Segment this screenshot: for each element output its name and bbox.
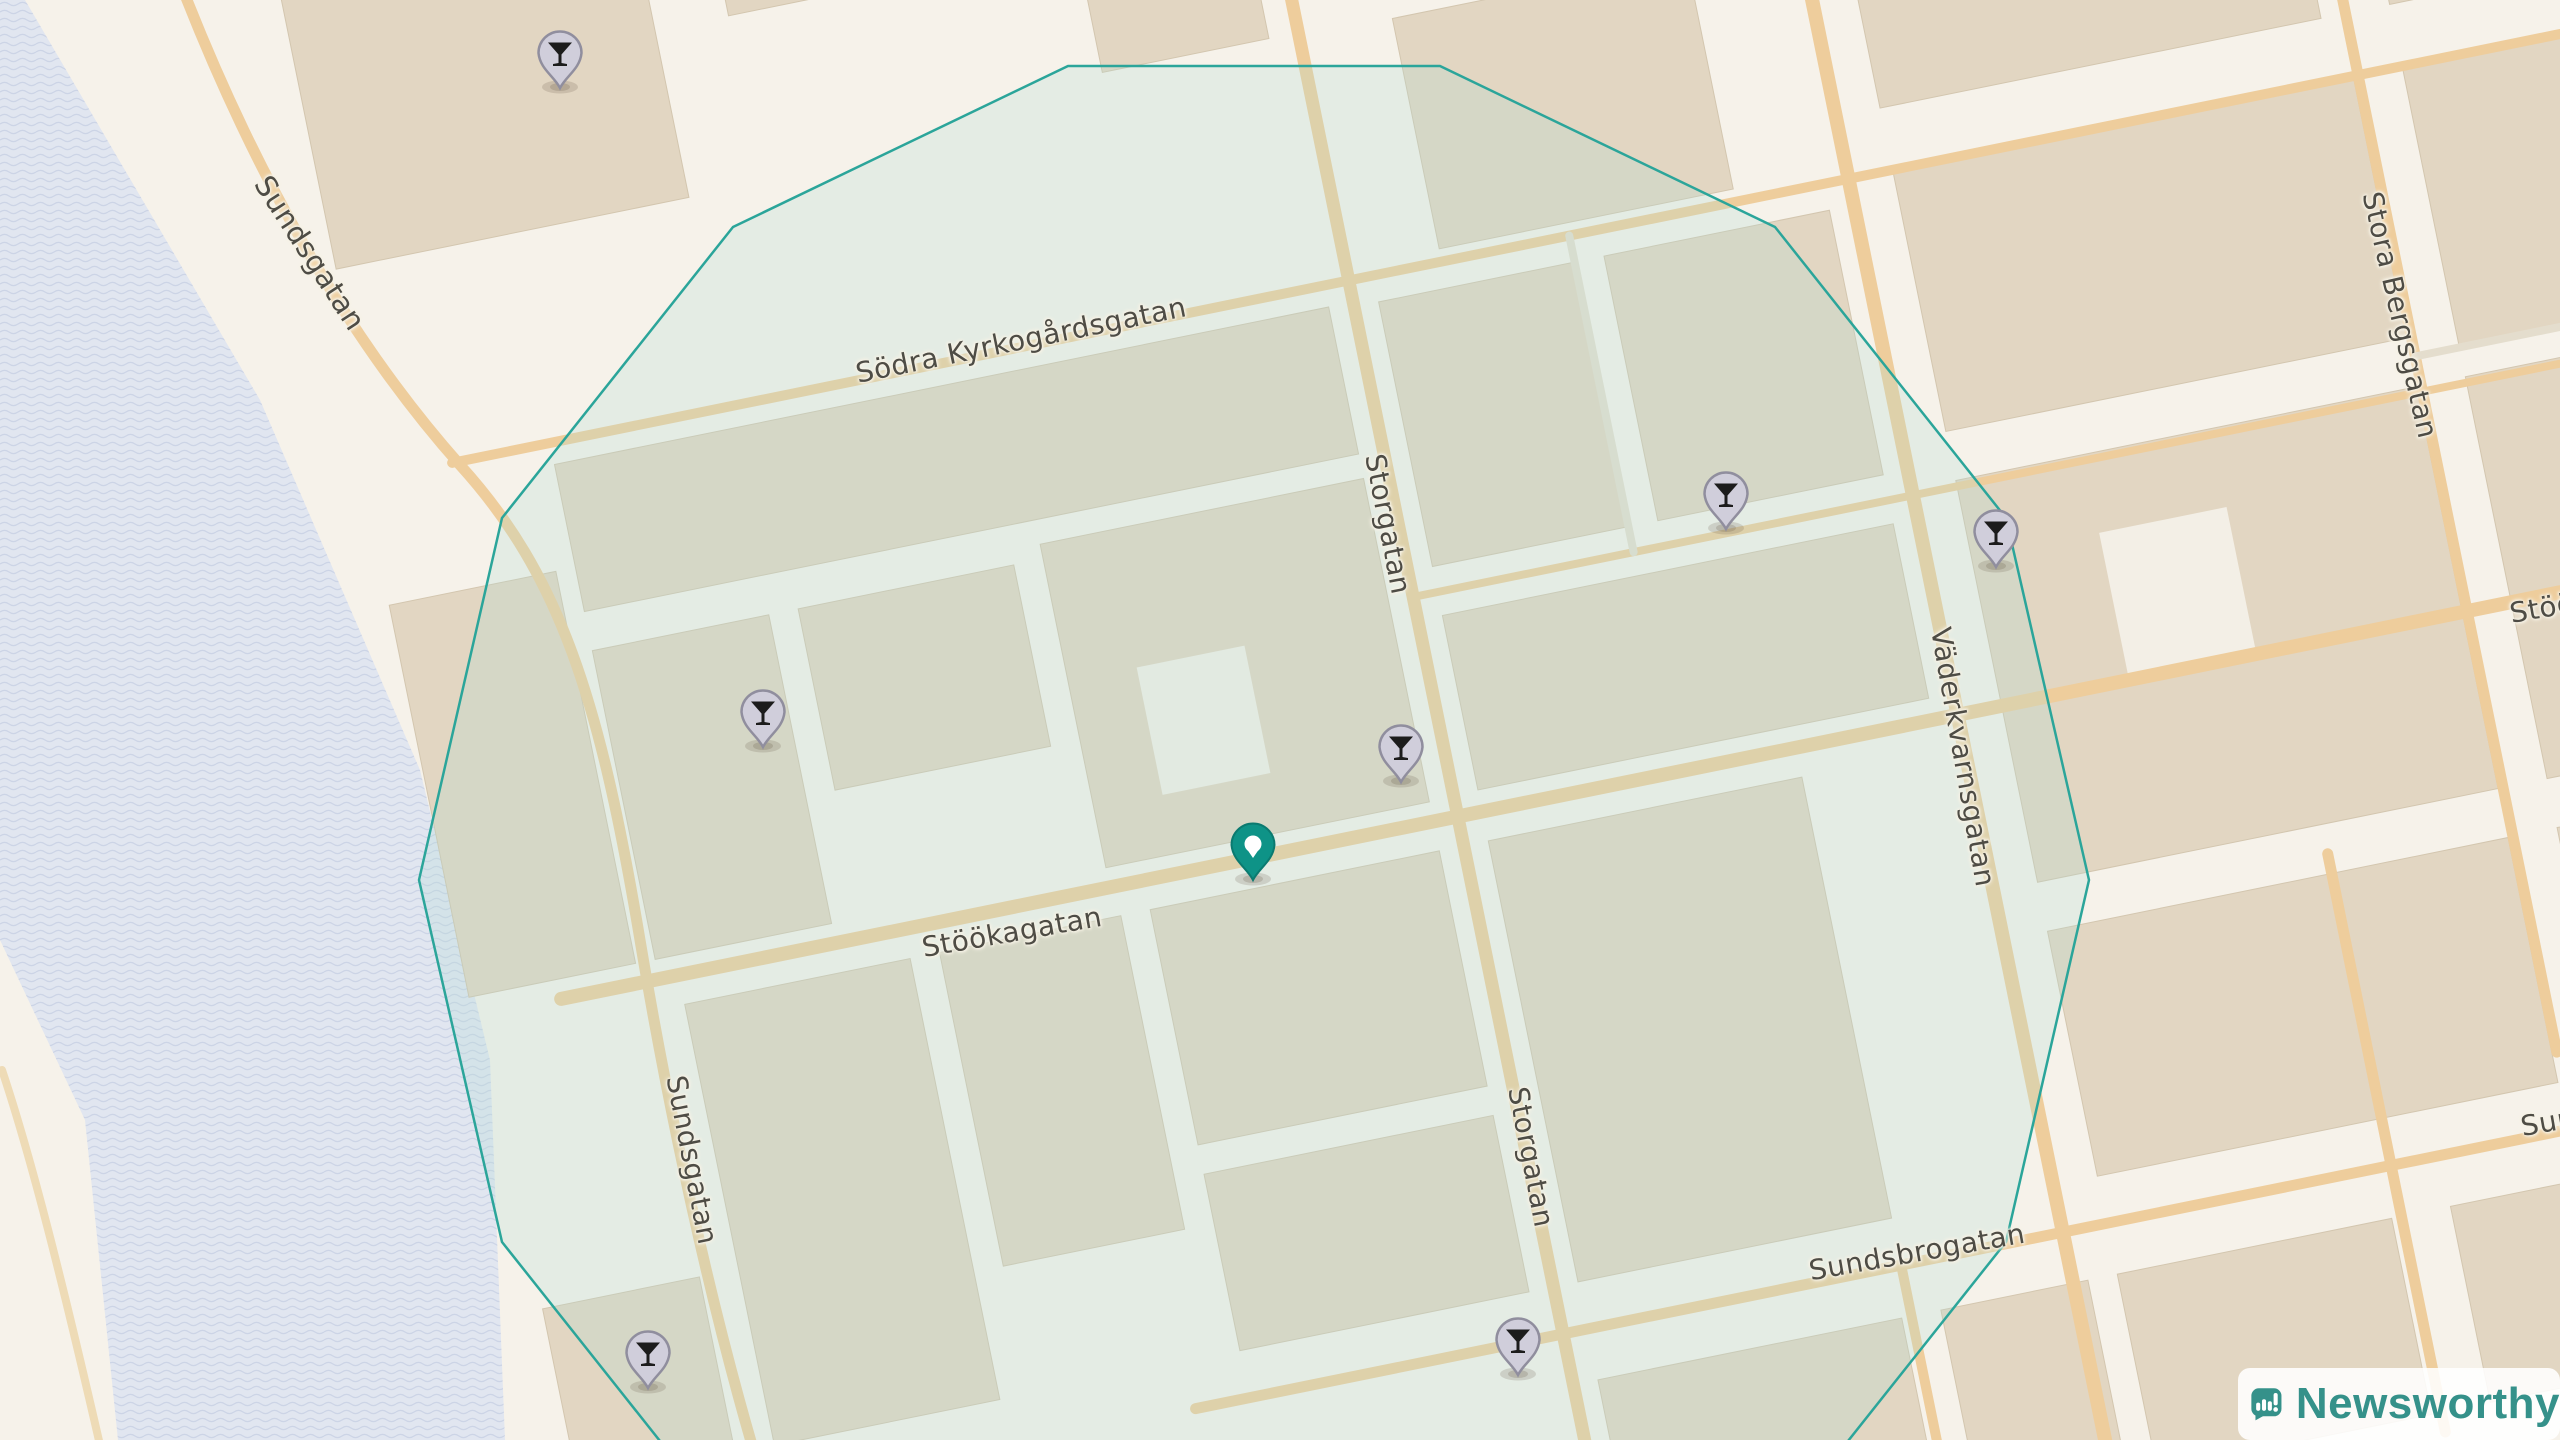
martini-glass-icon [534, 28, 586, 94]
martini-glass-icon [737, 687, 789, 753]
newsworthy-logo[interactable]: Newsworthy [2238, 1368, 2560, 1440]
selected-location-pin[interactable] [1227, 820, 1279, 886]
martini-glass-icon [622, 1328, 674, 1394]
map-graphic [0, 0, 2560, 1440]
bar-location-pin[interactable] [1970, 507, 2022, 573]
bar-location-pin[interactable] [1492, 1315, 1544, 1381]
bar-location-pin[interactable] [1700, 469, 1752, 535]
bar-location-pin[interactable] [622, 1328, 674, 1394]
martini-glass-icon [1492, 1315, 1544, 1381]
bar-location-pin[interactable] [534, 28, 586, 94]
newsworthy-logo-icon [2250, 1379, 2283, 1429]
martini-glass-icon [1375, 722, 1427, 788]
newsworthy-logo-text: Newsworthy [2296, 1379, 2560, 1429]
martini-glass-icon [1700, 469, 1752, 535]
map-canvas: Sundsgatan Södra Kyrkogårdsgatan Storgat… [0, 0, 2560, 1440]
martini-glass-icon [1970, 507, 2022, 573]
bar-location-pin[interactable] [737, 687, 789, 753]
selected-location-pin-icon [1227, 820, 1279, 886]
bar-location-pin[interactable] [1375, 722, 1427, 788]
